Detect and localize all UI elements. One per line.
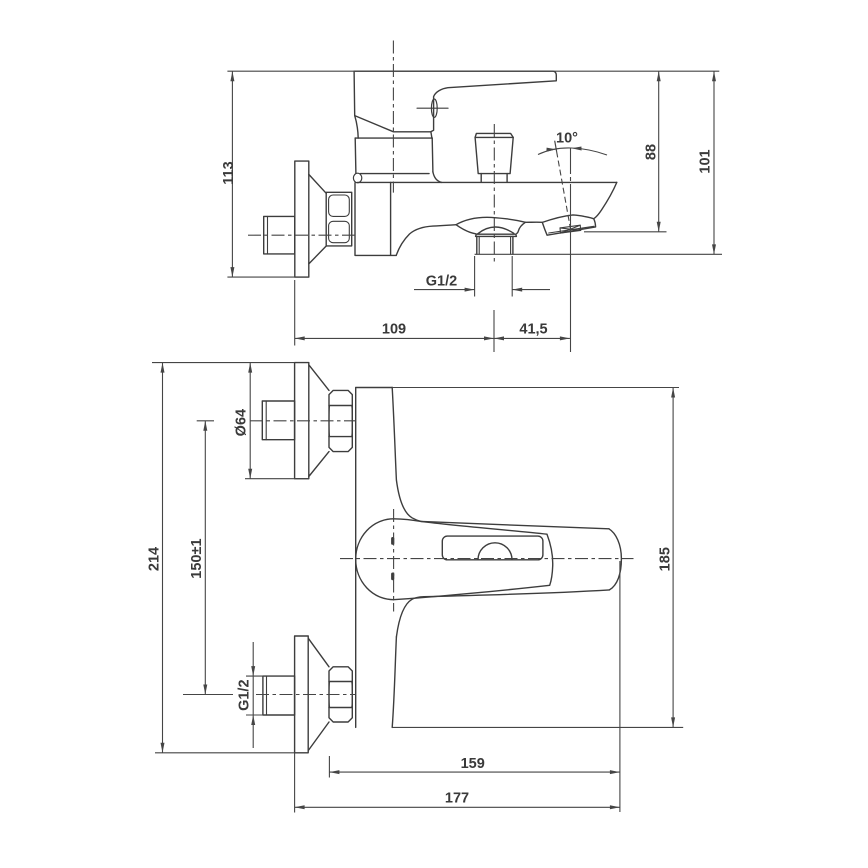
svg-text:185: 185 bbox=[657, 547, 673, 571]
svg-text:10°: 10° bbox=[556, 131, 578, 147]
svg-text:109: 109 bbox=[382, 322, 406, 338]
svg-text:101: 101 bbox=[698, 149, 714, 173]
svg-text:214: 214 bbox=[147, 547, 163, 571]
svg-text:150±1: 150±1 bbox=[189, 538, 205, 578]
svg-text:88: 88 bbox=[644, 144, 660, 160]
svg-text:41,5: 41,5 bbox=[519, 322, 547, 338]
svg-text:G1/2: G1/2 bbox=[237, 679, 253, 710]
svg-text:113: 113 bbox=[221, 161, 237, 184]
svg-text:159: 159 bbox=[461, 756, 485, 772]
svg-text:G1/2: G1/2 bbox=[426, 274, 457, 290]
svg-text:Ø64: Ø64 bbox=[234, 409, 250, 436]
svg-text:177: 177 bbox=[445, 790, 469, 806]
